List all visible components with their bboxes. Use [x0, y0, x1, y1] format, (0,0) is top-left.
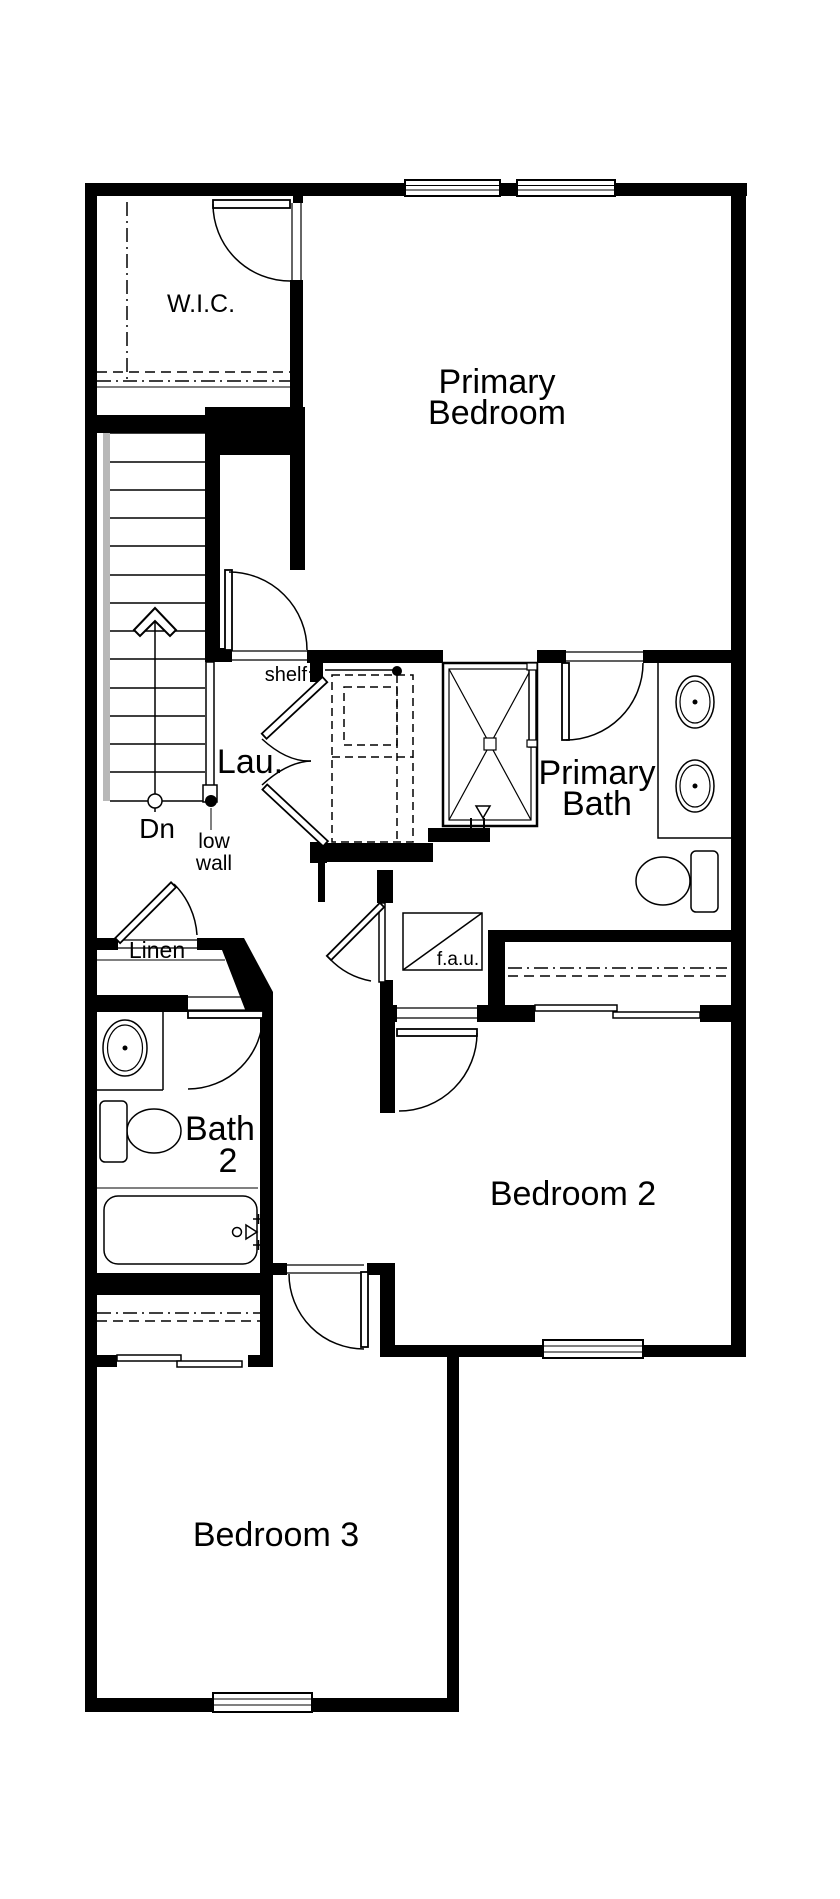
low-wall-dot: [205, 795, 217, 807]
window-top-left: [405, 180, 500, 196]
label-bath2-2: 2: [219, 1142, 238, 1180]
sink-icon: [103, 1020, 147, 1076]
wall-bath2-east: [260, 1012, 273, 1285]
label-shelf: shelf: [265, 664, 308, 686]
wall-bedroom3-right: [447, 1357, 459, 1710]
floor-plan-page: W.I.C. Primary Bedroom shelf Lau. Dn low…: [0, 0, 840, 1894]
label-low-wall-2: wall: [195, 852, 232, 875]
wall-shower-to-door: [537, 650, 566, 663]
bedroom3-door: [289, 1272, 368, 1349]
wall-primary-bedroom-west: [290, 455, 305, 570]
wall-bedroom2-top-east: [700, 1005, 731, 1022]
wall-primary-bath-bottom: [488, 930, 731, 942]
label-fau: f.a.u.: [437, 949, 479, 970]
opening-primary-bath-door: [566, 652, 643, 661]
closet-sliding-doors-bedroom3: [117, 1355, 242, 1367]
low-wall: [203, 662, 217, 830]
wall-wic-right: [290, 280, 303, 410]
label-down: Dn: [139, 813, 175, 844]
bathtub: [97, 1188, 264, 1264]
label-low-wall-1: low: [198, 830, 230, 853]
shower-door: [529, 663, 536, 747]
toilet-primary-bath: [636, 851, 718, 912]
wall-bath2-top-east: [263, 995, 273, 1012]
wall-bath2-top-west: [85, 995, 188, 1012]
wall-linen-top-left: [97, 938, 118, 950]
bedroom-entry-door: [225, 570, 307, 650]
sink-icon: [676, 760, 714, 812]
stair-edge-strip: [103, 433, 110, 801]
primary-bath-door: [562, 663, 643, 740]
label-primary-bedroom-2: Bedroom: [428, 394, 566, 432]
wall-fau-west-stub: [318, 843, 325, 902]
bedroom2-door: [397, 1029, 477, 1111]
wall-laundry-top: [307, 650, 443, 663]
wall-bedroom3-nook-bar: [380, 1275, 395, 1345]
wall-bedroom2-top-west: [477, 1005, 535, 1022]
wall-linen-top-right: [197, 938, 222, 950]
washer-dryer-dashed: [332, 675, 413, 842]
wall-left: [85, 183, 97, 1712]
opening-wic-door: [292, 203, 301, 280]
vanity-sink-bath2: [97, 1012, 163, 1090]
linen-door: [115, 882, 197, 943]
sink-icon: [676, 676, 714, 728]
wall-fau-corner: [377, 870, 393, 903]
wall-stair-east: [205, 455, 220, 662]
bath2-door: [188, 1011, 263, 1089]
fau-door: [327, 903, 385, 982]
wall-bedroom3-door-jamb: [367, 1263, 395, 1275]
wall-bedroom2-top-stub: [380, 1005, 397, 1022]
wall-closet3-stub-right: [248, 1355, 273, 1367]
wall-closet3-stub-left: [97, 1355, 117, 1367]
shower: [443, 663, 537, 833]
wic-door: [213, 200, 290, 281]
opening-bedroom2-door: [397, 1008, 477, 1018]
closet-sliding-doors-bedroom2: [535, 1005, 700, 1018]
toilet-bath2: [100, 1101, 181, 1162]
stair-line-terminus: [148, 794, 162, 808]
wall-bath2-closet3-slab: [85, 1273, 273, 1295]
window-bedroom3: [213, 1693, 312, 1712]
low-wall-line: [206, 662, 214, 795]
label-wic: W.I.C.: [167, 290, 235, 318]
floor-plan-drawing: W.I.C. Primary Bedroom shelf Lau. Dn low…: [0, 0, 840, 1894]
wall-under-wic: [97, 415, 205, 433]
wall-bedroom2-west-bar: [380, 1022, 395, 1113]
label-laundry: Lau.: [217, 743, 283, 781]
stairs-down: [103, 433, 205, 812]
window-bedroom2: [543, 1340, 643, 1358]
wall-shower-bottom: [428, 828, 490, 842]
wall-laundry-bottom: [310, 843, 433, 862]
double-vanity-sinks: [658, 663, 731, 838]
opening-bedroom3-door: [287, 1265, 364, 1273]
wall-wic-stub: [293, 195, 303, 203]
label-primary-bath-2: Bath: [562, 785, 632, 823]
label-bedroom2: Bedroom 2: [490, 1175, 656, 1213]
label-linen: Linen: [129, 937, 185, 963]
wall-door-to-right: [643, 650, 731, 663]
wall-closet2-west-stub: [488, 940, 505, 1010]
wall-chunk-under-wic: [205, 407, 305, 455]
wall-right: [731, 183, 746, 1357]
window-top-right: [517, 180, 615, 196]
label-bedroom3: Bedroom 3: [193, 1516, 359, 1554]
wall-hall-bottom-stub: [273, 1263, 287, 1275]
opening-landing: [232, 651, 307, 660]
